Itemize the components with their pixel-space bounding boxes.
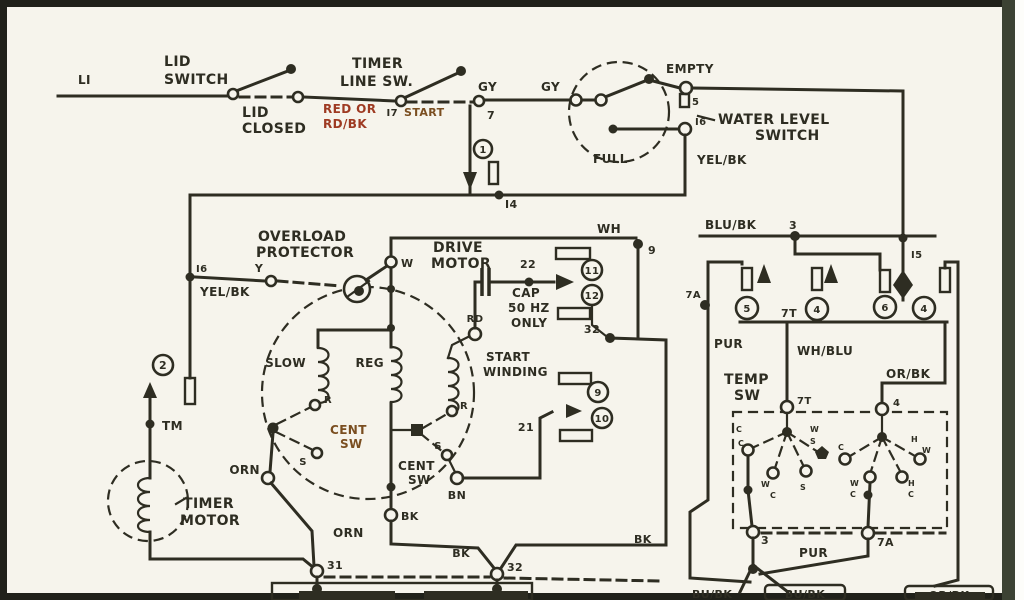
- label-empty: EMPTY: [666, 62, 714, 76]
- label-water-level-2: SWITCH: [755, 128, 820, 144]
- lid-switch: [228, 64, 303, 102]
- label-full: FULL: [593, 152, 628, 166]
- label-blu-bk: BLU/BK: [705, 218, 757, 232]
- label-or-bk-bottom: OR/BK: [929, 589, 970, 600]
- label-cent2-1: CENT: [398, 459, 435, 473]
- label-7t-row: 7T: [781, 307, 797, 320]
- label-3-top: 3: [789, 219, 797, 232]
- label-rd-bk: RD/BK: [323, 117, 367, 131]
- label-32: 32: [507, 561, 523, 574]
- label-cent1-1: CENT: [330, 423, 367, 437]
- label-yel-bk-left: YEL/BK: [199, 285, 250, 299]
- label-overload-2: PROTECTOR: [256, 245, 354, 261]
- label-t11: 11: [585, 266, 600, 277]
- label-drive: DRIVE: [433, 240, 483, 256]
- temp-contact-letter: C: [736, 425, 742, 434]
- label-bn: BN: [448, 489, 466, 502]
- temp-contact-letter: C: [770, 491, 776, 500]
- label-32-mid: 32: [584, 323, 600, 336]
- label-lid-switch-2: SWITCH: [164, 72, 229, 88]
- temp-switch: [733, 401, 947, 539]
- label-w: W: [401, 257, 414, 270]
- temp-contact-letter: W: [922, 446, 931, 455]
- label-term-c2: 4: [813, 305, 820, 316]
- label-21: 21: [518, 421, 534, 434]
- label-term-c1: 5: [743, 304, 750, 315]
- label-start: START: [404, 106, 445, 119]
- labels: LI LID SWITCH LID CLOSED RED OR RD/BK TI…: [78, 54, 969, 600]
- wiring-diagram: LI LID SWITCH LID CLOSED RED OR RD/BK TI…: [0, 0, 1024, 600]
- label-i6-wls: I6: [695, 117, 706, 128]
- label-rd: RD: [467, 314, 484, 325]
- temp-contact-letter: C: [838, 443, 844, 452]
- label-bk3: BK: [634, 533, 652, 546]
- label-timer-line-2: LINE SW.: [340, 74, 413, 90]
- label-t9: 9: [594, 388, 601, 399]
- water-level-switch: [569, 62, 714, 162]
- label-circled-2: 2: [159, 359, 167, 372]
- timer-terminals-right: [556, 248, 666, 545]
- label-bk1: BK: [401, 510, 419, 523]
- temp-contact-letter: C: [738, 439, 744, 448]
- label-term-c3: 6: [881, 303, 888, 314]
- label-timer-motor-1: TIMER: [183, 496, 234, 512]
- label-gy1: GY: [478, 80, 497, 94]
- label-bu-bk-1: BU/BK: [692, 588, 732, 600]
- label-4-hub: 4: [893, 398, 900, 409]
- label-lid-closed-2: CLOSED: [242, 121, 306, 137]
- temp-contact-letter: H: [911, 435, 918, 444]
- label-cent2-2: SW: [408, 473, 431, 487]
- label-31: 31: [327, 559, 343, 572]
- label-orn2: ORN: [333, 526, 364, 540]
- label-gy2: GY: [541, 80, 560, 94]
- scan-edge-bar: [1002, 0, 1015, 600]
- label-r2: R: [460, 401, 468, 412]
- label-i5: I5: [911, 250, 922, 261]
- label-s1: S: [299, 457, 307, 468]
- label-timer-line-1: TIMER: [352, 56, 403, 72]
- label-7t-hub: 7T: [797, 396, 812, 407]
- label-s2: S: [434, 441, 442, 452]
- label-overload-1: OVERLOAD: [258, 229, 346, 245]
- label-y: Y: [254, 262, 264, 275]
- reg-winding: [387, 347, 402, 509]
- label-3-bottom: 3: [761, 534, 769, 547]
- label-i6-left: I6: [196, 264, 207, 275]
- label-timer-motor-2: MOTOR: [180, 513, 240, 529]
- label-drive-motor: MOTOR: [431, 256, 491, 272]
- temp-contact-letter: C: [850, 490, 856, 499]
- label-lid-switch-1: LID: [164, 54, 191, 70]
- temp-contact-letter: W: [850, 479, 859, 488]
- label-reg: REG: [356, 356, 385, 370]
- label-orn1: ORN: [229, 463, 260, 477]
- label-7a-bottom: 7A: [877, 536, 894, 549]
- label-bk2: BK: [452, 547, 470, 560]
- label-start-winding-2: WINDING: [483, 365, 548, 379]
- label-bu-bk-2: BU/BK: [785, 588, 825, 600]
- label-term-c4: 4: [920, 304, 927, 315]
- drive-motor: [262, 287, 474, 499]
- label-temp-1: TEMP: [724, 372, 769, 388]
- temp-contact-letter: S: [800, 483, 806, 492]
- label-t10: 10: [595, 414, 610, 425]
- label-lid-closed-1: LID: [242, 105, 269, 121]
- label-5: 5: [692, 97, 699, 108]
- label-cap-2: 50 HZ: [508, 301, 550, 315]
- label-yel-bk-right: YEL/BK: [696, 153, 747, 167]
- label-7: 7: [487, 109, 495, 122]
- label-cap-3: ONLY: [511, 316, 547, 330]
- label-r1: R: [324, 395, 332, 406]
- label-9: 9: [648, 244, 656, 257]
- label-li: LI: [78, 73, 91, 87]
- label-i4: I4: [505, 198, 518, 211]
- temp-contact-letter: C: [908, 490, 914, 499]
- label-wh-blu: WH/BLU: [797, 344, 853, 358]
- label-wh: WH: [597, 222, 621, 236]
- label-slow: SLOW: [265, 356, 306, 370]
- label-or-bk: OR/BK: [886, 367, 931, 381]
- label-7a-top: 7A: [686, 290, 702, 301]
- temp-contact-letter: W: [761, 480, 770, 489]
- line-in-wire: [58, 96, 595, 101]
- blu-bk-bus: [700, 231, 935, 270]
- or-bk-wire: [882, 322, 945, 403]
- label-red-or: RED OR: [323, 102, 376, 116]
- temp-contact-letter: S: [810, 437, 816, 446]
- label-circled-1: 1: [479, 145, 486, 156]
- label-i7: I7: [387, 108, 398, 119]
- label-pur1: PUR: [714, 337, 743, 351]
- left-connector: [143, 355, 195, 478]
- label-water-level-1: WATER LEVEL: [718, 112, 830, 128]
- schematic-scan: LI LID SWITCH LID CLOSED RED OR RD/BK TI…: [0, 0, 1024, 600]
- label-pur2: PUR: [799, 546, 828, 560]
- label-start-winding-1: START: [486, 350, 530, 364]
- label-t12: 12: [585, 291, 600, 302]
- label-22: 22: [520, 258, 536, 271]
- label-temp-2: SW: [734, 388, 760, 404]
- temp-contact-letter: H: [908, 479, 915, 488]
- label-cap-1: CAP: [512, 286, 540, 300]
- temp-contact-letter: W: [810, 425, 819, 434]
- label-tm: TM: [162, 419, 183, 433]
- label-cent1-2: SW: [340, 437, 363, 451]
